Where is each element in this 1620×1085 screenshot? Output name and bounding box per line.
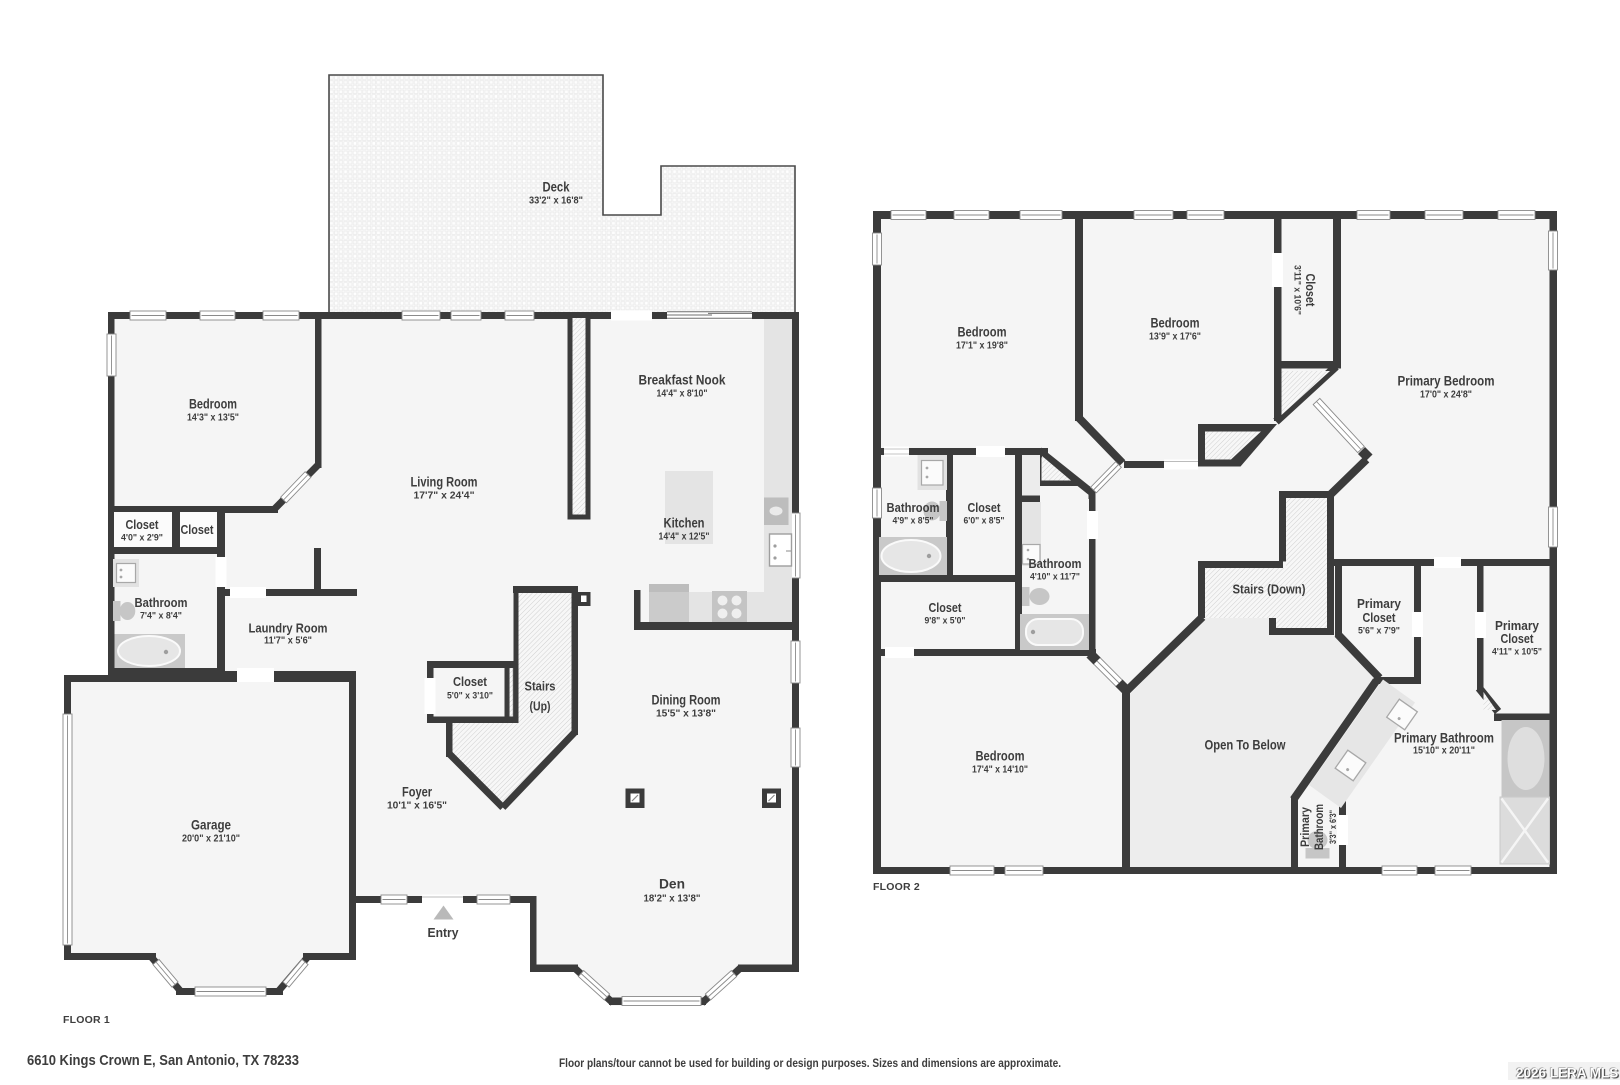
svg-text:Bathroom: Bathroom <box>1029 557 1082 571</box>
svg-text:7'4" x 8'4": 7'4" x 8'4" <box>140 611 182 622</box>
svg-text:FLOOR 1: FLOOR 1 <box>63 1014 110 1026</box>
svg-text:15'5" x 13'8": 15'5" x 13'8" <box>656 709 716 720</box>
svg-text:Foyer: Foyer <box>402 785 433 800</box>
svg-text:Breakfast Nook: Breakfast Nook <box>639 373 726 388</box>
svg-text:9'8" x 5'0": 9'8" x 5'0" <box>925 616 966 627</box>
svg-text:11'7" x 5'6": 11'7" x 5'6" <box>264 636 312 647</box>
svg-text:6'0" x 8'5": 6'0" x 8'5" <box>964 516 1005 527</box>
svg-text:17'1" x 19'8": 17'1" x 19'8" <box>956 341 1008 352</box>
svg-text:Bathroom: Bathroom <box>135 596 188 610</box>
svg-text:Entry: Entry <box>428 926 459 940</box>
svg-text:Bathroom: Bathroom <box>1314 804 1326 850</box>
svg-text:Closet: Closet <box>1501 632 1535 646</box>
svg-text:Closet: Closet <box>453 675 488 689</box>
svg-text:Bedroom: Bedroom <box>189 397 237 412</box>
svg-text:3'11" x 10'6": 3'11" x 10'6" <box>1292 265 1303 315</box>
svg-text:Dining Room: Dining Room <box>652 693 721 708</box>
svg-text:4'11" x 10'5": 4'11" x 10'5" <box>1492 647 1542 658</box>
svg-text:13'9" x 17'6": 13'9" x 17'6" <box>1149 332 1201 343</box>
svg-text:Bedroom: Bedroom <box>1151 316 1200 331</box>
svg-text:5'0" x 3'10": 5'0" x 3'10" <box>447 691 493 702</box>
svg-text:Deck: Deck <box>543 180 570 195</box>
svg-text:Living Room: Living Room <box>411 475 478 490</box>
svg-text:3'3" x 6'3": 3'3" x 6'3" <box>1328 810 1338 844</box>
svg-text:4'10" x 11'7": 4'10" x 11'7" <box>1030 572 1080 583</box>
svg-text:14'3" x 13'5": 14'3" x 13'5" <box>187 413 239 424</box>
svg-text:17'7" x 24'4": 17'7" x 24'4" <box>414 491 475 502</box>
svg-text:(Up): (Up) <box>530 699 551 714</box>
svg-text:4'9" x 8'5": 4'9" x 8'5" <box>893 516 934 527</box>
svg-text:17'0" x 24'8": 17'0" x 24'8" <box>1420 390 1472 401</box>
svg-text:Primary Bathroom: Primary Bathroom <box>1394 731 1494 746</box>
svg-text:14'4" x 12'5": 14'4" x 12'5" <box>659 532 710 543</box>
svg-text:Primary: Primary <box>1357 597 1401 611</box>
svg-text:14'4" x 8'10": 14'4" x 8'10" <box>657 389 708 400</box>
svg-text:18'2" x 13'8": 18'2" x 13'8" <box>644 894 701 905</box>
svg-text:17'4" x 14'10": 17'4" x 14'10" <box>972 765 1028 776</box>
svg-text:33'2" x 16'8": 33'2" x 16'8" <box>529 196 583 207</box>
svg-text:Bedroom: Bedroom <box>976 749 1025 764</box>
svg-text:Primary: Primary <box>1495 619 1539 633</box>
svg-text:2026 LERA MLS: 2026 LERA MLS <box>1516 1066 1618 1081</box>
svg-text:Garage: Garage <box>191 818 231 833</box>
svg-text:10'1" x 16'5": 10'1" x 16'5" <box>387 801 447 812</box>
svg-text:FLOOR 2: FLOOR 2 <box>873 881 920 893</box>
svg-text:4'0" x 2'9": 4'0" x 2'9" <box>121 533 163 544</box>
svg-text:Bathroom: Bathroom <box>887 501 940 515</box>
svg-text:6610 Kings Crown E, San Antoni: 6610 Kings Crown E, San Antonio, TX 7823… <box>27 1053 299 1069</box>
svg-text:Closet: Closet <box>126 518 160 532</box>
svg-text:Open To Below: Open To Below <box>1205 738 1286 753</box>
svg-text:Closet: Closet <box>181 523 215 537</box>
svg-text:Closet: Closet <box>929 601 963 615</box>
svg-text:Stairs (Down): Stairs (Down) <box>1233 582 1306 597</box>
svg-text:Den: Den <box>659 877 685 892</box>
svg-text:Primary Bedroom: Primary Bedroom <box>1398 374 1495 389</box>
svg-text:Bedroom: Bedroom <box>958 325 1007 340</box>
svg-text:5'6" x 7'9": 5'6" x 7'9" <box>1358 626 1400 637</box>
svg-text:Closet: Closet <box>1363 611 1397 625</box>
svg-text:Closet: Closet <box>968 501 1002 515</box>
svg-text:Primary: Primary <box>1300 806 1312 847</box>
svg-text:Laundry Room: Laundry Room <box>249 621 328 636</box>
svg-text:Floor plans/tour cannot be use: Floor plans/tour cannot be used for buil… <box>559 1058 1061 1070</box>
svg-text:Kitchen: Kitchen <box>664 516 705 531</box>
svg-text:Closet: Closet <box>1303 274 1317 308</box>
svg-text:Stairs: Stairs <box>525 679 556 694</box>
svg-text:20'0" x 21'10": 20'0" x 21'10" <box>182 834 240 845</box>
svg-text:15'10" x 20'11": 15'10" x 20'11" <box>1413 746 1475 757</box>
